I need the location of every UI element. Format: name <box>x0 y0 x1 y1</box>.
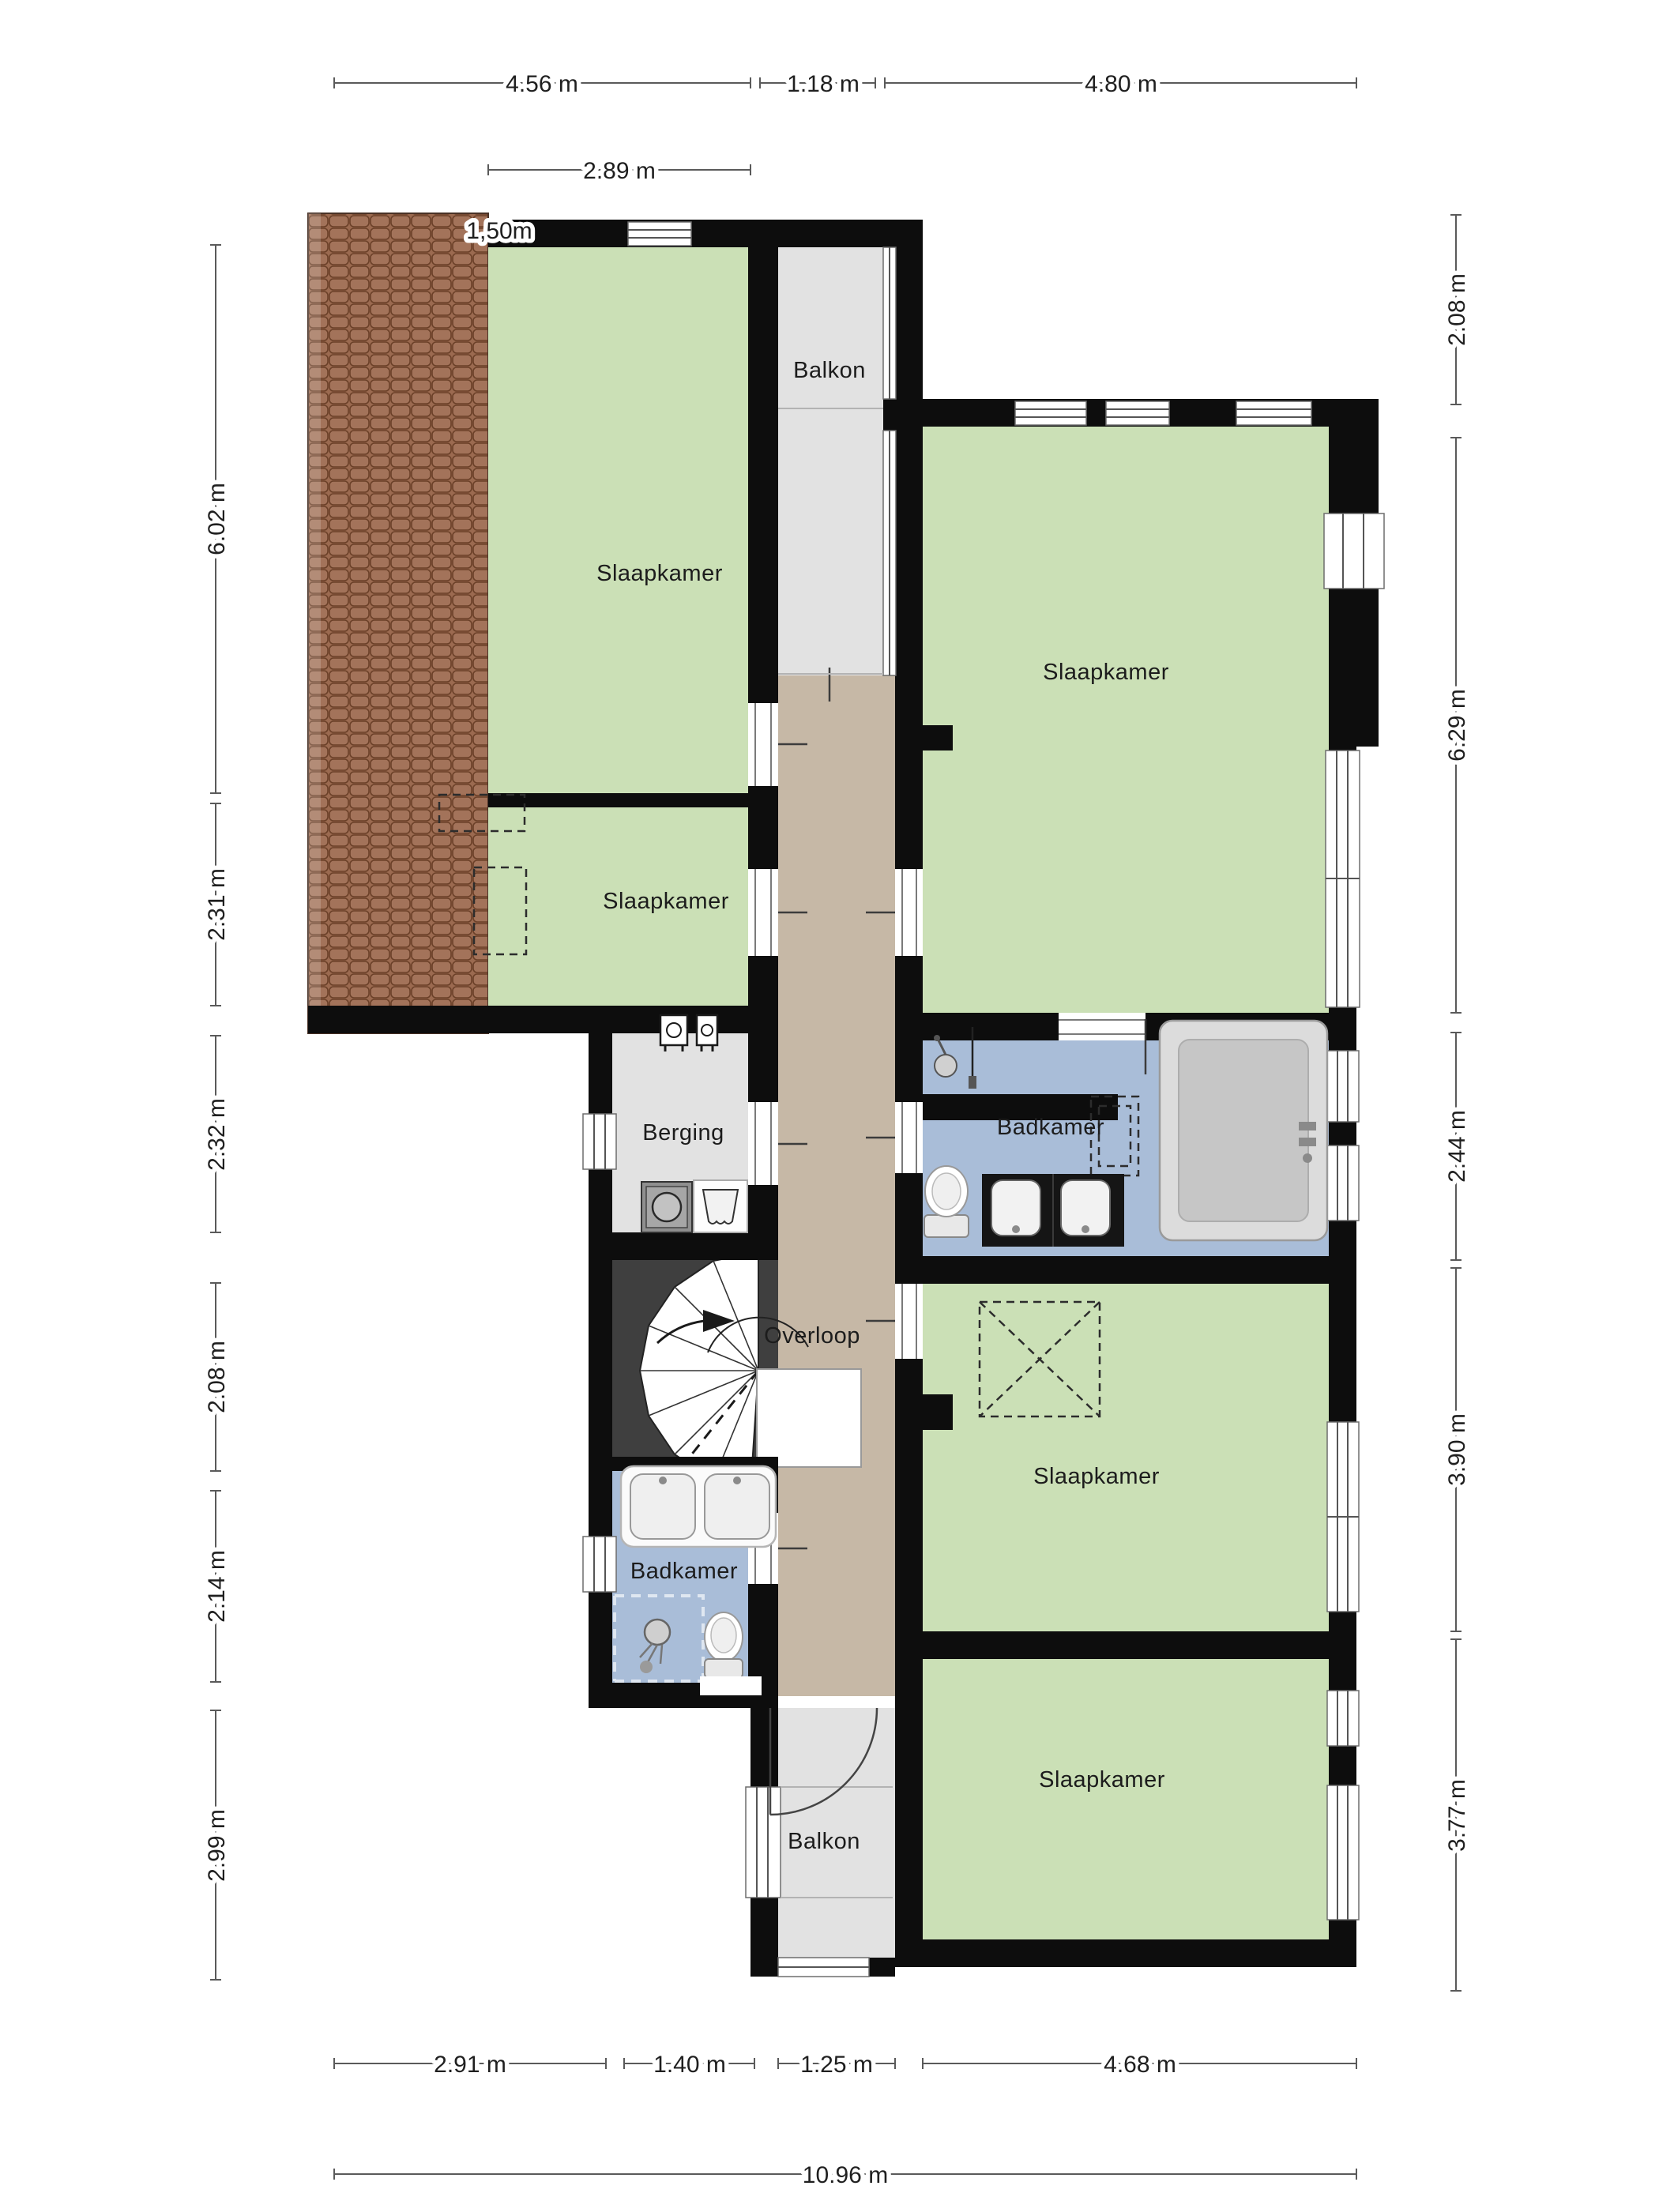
dim-bottom-0-label: 2.91 m <box>434 2052 506 2078</box>
dim-right-3: 3.90 m <box>1444 1268 1470 1631</box>
room-slaapkamer-middle <box>923 1284 1329 1631</box>
dim-left-2: 2.32 m <box>204 1036 230 1232</box>
room-balkon-top <box>778 247 883 675</box>
dim-left-3: 2.08 m <box>204 1283 230 1471</box>
wall-stub-duct-top-right <box>923 725 953 750</box>
window-badkamer-left <box>583 1537 616 1592</box>
label-balkon-top: Balkon <box>793 358 866 383</box>
dim-bottom-2-label: 1.25 m <box>800 2052 873 2078</box>
dim-right-4-label: 3.77 m <box>1444 1779 1470 1852</box>
window-right-bath-1 <box>1327 1051 1359 1122</box>
mechanical-unit-icon <box>660 1015 687 1051</box>
dim-top-2: 4.80 m <box>885 71 1356 97</box>
window-berging-left <box>583 1114 616 1169</box>
dim-left-4: 2.14 m <box>204 1491 230 1682</box>
dim-right-3-label: 3.90 m <box>1444 1413 1470 1486</box>
label-slaapkamer-left-small: Slaapkamer <box>603 889 729 914</box>
dim-top-1: 1.18 m <box>760 71 875 97</box>
window-right-middle-room <box>1327 1422 1359 1612</box>
dim-left-5: 2.99 m <box>204 1710 230 1980</box>
roof-highlight <box>308 213 321 1033</box>
dim-right-0: 2.08 m <box>1444 215 1470 404</box>
window-top-right-2 <box>1106 401 1169 425</box>
floorplan-page: Slaapkamer Slaapkamer Slaapkamer Slaapka… <box>0 0 1659 2212</box>
dim-bottom-1-label: 1.40 m <box>653 2052 726 2078</box>
dim-left-3-label: 2.08 m <box>204 1341 230 1413</box>
stair-landing <box>757 1369 861 1467</box>
dim-left-4-label: 2.14 m <box>204 1550 230 1623</box>
window-right-upper-small <box>1324 513 1384 589</box>
dim-bottom-total: 10.96 m <box>334 2162 1356 2188</box>
dim-bottom-total-label: 10.96 m <box>803 2162 888 2188</box>
dim-top-2-label: 4.80 m <box>1085 71 1157 97</box>
dim-bottom-1: 1.40 m <box>624 2052 754 2078</box>
dim-right-1: 6.29 m <box>1444 438 1470 1013</box>
dim-right-0-label: 2.08 m <box>1444 273 1470 346</box>
dim-top-secondary: 2.89 m <box>488 158 750 184</box>
window-top-right-3 <box>1236 401 1311 425</box>
window-right-bottom-long <box>1327 1785 1359 1920</box>
label-berging: Berging <box>642 1120 724 1145</box>
dim-bottom-3: 4.68 m <box>923 2052 1356 2078</box>
dim-left-1: 2.31 m <box>204 803 230 1006</box>
dim-top-1-label: 1.18 m <box>787 71 860 97</box>
dim-left-0-label: 6.02 m <box>204 483 230 555</box>
dim-top-secondary-label: 2.89 m <box>583 158 656 184</box>
dim-right-4: 3.77 m <box>1444 1639 1470 1991</box>
label-slaapkamer-top-right: Slaapkamer <box>1043 660 1169 685</box>
boiler-icon <box>697 1015 717 1051</box>
roof-tiled-area <box>308 213 488 1033</box>
window-top-left <box>628 222 691 246</box>
roof-width-note: 1,50m <box>466 218 532 244</box>
label-badkamer-right: Badkamer <box>997 1115 1104 1140</box>
dim-left-5-label: 2.99 m <box>204 1809 230 1882</box>
label-slaapkamer-bottom: Slaapkamer <box>1039 1767 1165 1793</box>
dim-bottom-3-label: 4.68 m <box>1104 2052 1176 2078</box>
laundry-sink-icon <box>694 1180 747 1232</box>
room-slaapkamer-top-left <box>488 247 748 793</box>
vanity-double-sink <box>982 1174 1124 1247</box>
window-right-long <box>1326 750 1360 1007</box>
label-slaapkamer-middle: Slaapkamer <box>1033 1464 1160 1489</box>
dim-top-0-label: 4.56 m <box>506 71 578 97</box>
washing-machine-icon <box>641 1182 692 1232</box>
room-slaapkamer-bottom <box>923 1659 1329 1939</box>
bathtub-icon <box>1160 1021 1327 1240</box>
wall-stub-duct-middle <box>923 1394 953 1430</box>
dim-bottom-0: 2.91 m <box>334 2052 606 2078</box>
room-slaapkamer-top-right <box>923 427 1329 1013</box>
dim-left-1-label: 2.31 m <box>204 868 230 941</box>
dim-left-0: 6.02 m <box>204 245 230 793</box>
window-right-bath-2 <box>1327 1145 1359 1221</box>
dim-right-2: 2.44 m <box>1444 1033 1470 1260</box>
label-badkamer-left: Badkamer <box>630 1559 738 1584</box>
dim-left-2-label: 2.32 m <box>204 1098 230 1171</box>
label-overloop: Overloop <box>764 1323 860 1349</box>
toilet-icon <box>924 1166 969 1237</box>
label-balkon-bottom: Balkon <box>788 1829 860 1854</box>
dim-right-1-label: 6.29 m <box>1444 689 1470 762</box>
label-slaapkamer-top-left: Slaapkamer <box>596 561 723 586</box>
window-right-bottom-small <box>1327 1691 1359 1746</box>
window-top-right-1 <box>1015 401 1086 425</box>
vanity-double-sink-left <box>621 1466 776 1547</box>
dim-right-2-label: 2.44 m <box>1444 1110 1470 1183</box>
window-balkon-bottom-left <box>746 1787 781 1898</box>
dim-top-0: 4.56 m <box>334 71 750 97</box>
dim-bottom-2: 1.25 m <box>778 2052 895 2078</box>
room-overloop-corridor <box>778 675 895 1696</box>
floorplan-svg: Slaapkamer Slaapkamer Slaapkamer Slaapka… <box>0 0 1659 2212</box>
